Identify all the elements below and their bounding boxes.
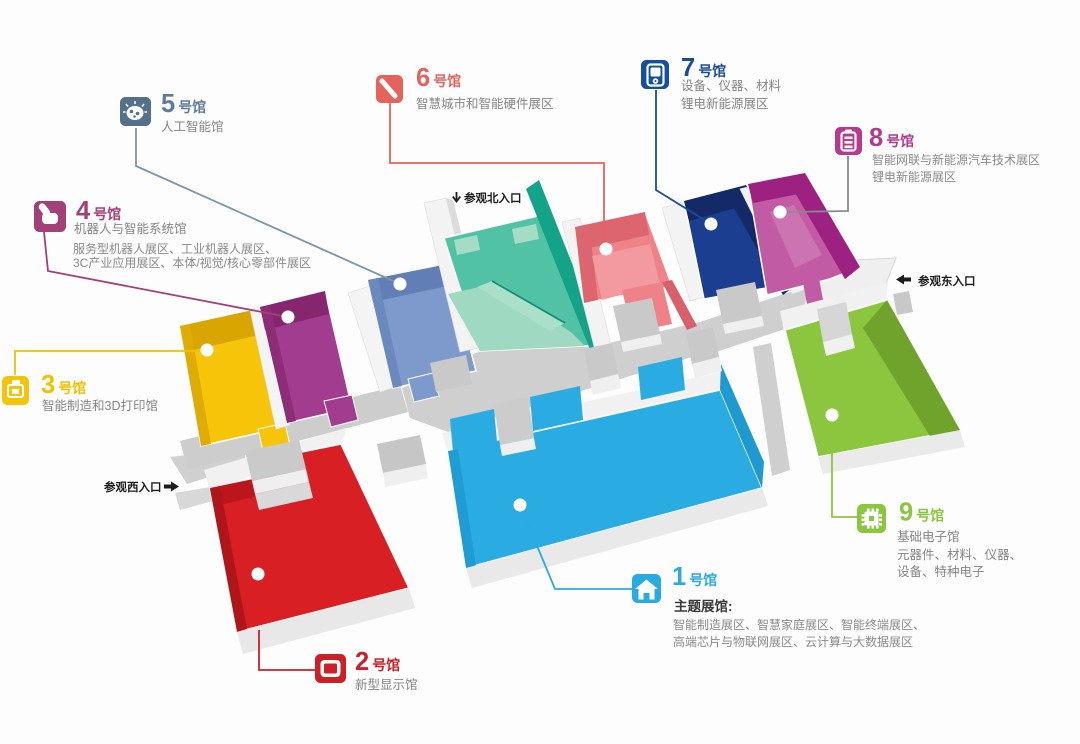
svg-text:锂电新能源展区: 锂电新能源展区 [872, 169, 956, 184]
svg-text:元器件、材料、仪器、: 元器件、材料、仪器、 [897, 548, 1022, 562]
svg-text:参观东入口: 参观东入口 [917, 274, 976, 288]
svg-text:设备、仪器、材料: 设备、仪器、材料 [681, 78, 782, 93]
svg-text:参观北入口: 参观北入口 [463, 191, 522, 205]
svg-text:智慧城市和智能硬件展区: 智慧城市和智能硬件展区 [416, 96, 554, 111]
svg-text:新型显示馆: 新型显示馆 [355, 677, 418, 692]
svg-text:基础电子馆: 基础电子馆 [897, 529, 960, 544]
svg-text:高端芯片与物联网展区、云计算与大数据展区: 高端芯片与物联网展区、云计算与大数据展区 [673, 634, 913, 649]
svg-text:机器人与智能系统馆: 机器人与智能系统馆 [74, 221, 187, 236]
svg-text:主题展馆:: 主题展馆: [674, 598, 733, 614]
svg-text:锂电新能源展区: 锂电新能源展区 [681, 96, 769, 111]
svg-text:设备、特种电子: 设备、特种电子 [897, 564, 985, 579]
svg-text:参观西入口: 参观西入口 [103, 480, 162, 494]
svg-text:智能网联与新能源汽车技术展区: 智能网联与新能源汽车技术展区 [872, 152, 1040, 167]
svg-text:智能制造展区、智慧家庭展区、智能终端展区、: 智能制造展区、智慧家庭展区、智能终端展区、 [673, 617, 925, 632]
svg-text:服务型机器人展区、工业机器人展区、: 服务型机器人展区、工业机器人展区、 [73, 241, 277, 256]
svg-text:3C产业应用展区、本体/视觉/核心零部件展区: 3C产业应用展区、本体/视觉/核心零部件展区 [73, 255, 311, 270]
svg-text:人工智能馆: 人工智能馆 [161, 119, 224, 134]
svg-text:智能制造和3D打印馆: 智能制造和3D打印馆 [42, 398, 158, 413]
